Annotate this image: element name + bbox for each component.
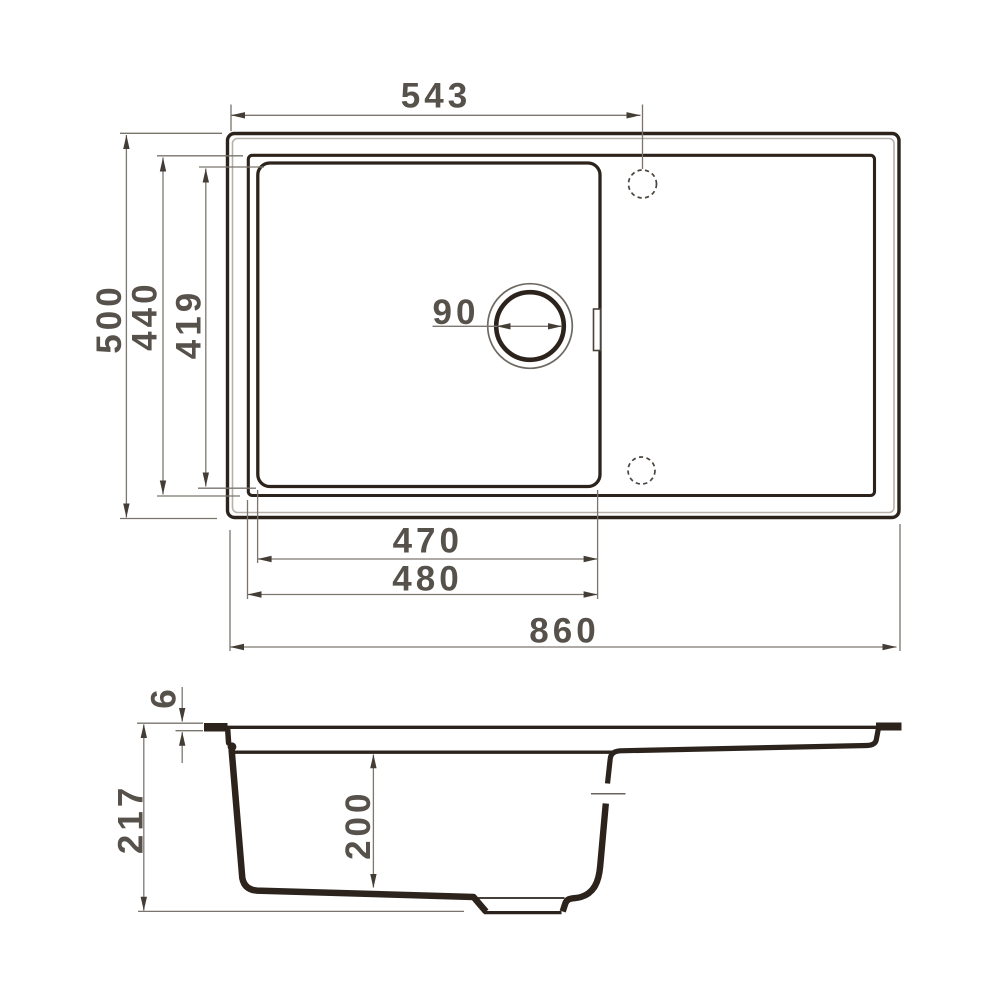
svg-text:217: 217 (111, 784, 150, 854)
svg-text:543: 543 (401, 77, 471, 116)
svg-text:860: 860 (529, 612, 599, 651)
svg-text:90: 90 (433, 293, 480, 332)
svg-text:470: 470 (393, 522, 463, 561)
svg-text:500: 500 (90, 283, 129, 353)
svg-text:419: 419 (170, 289, 209, 359)
svg-text:6: 6 (145, 685, 184, 708)
svg-text:440: 440 (125, 280, 164, 350)
svg-text:480: 480 (392, 560, 462, 599)
svg-text:200: 200 (339, 789, 378, 859)
